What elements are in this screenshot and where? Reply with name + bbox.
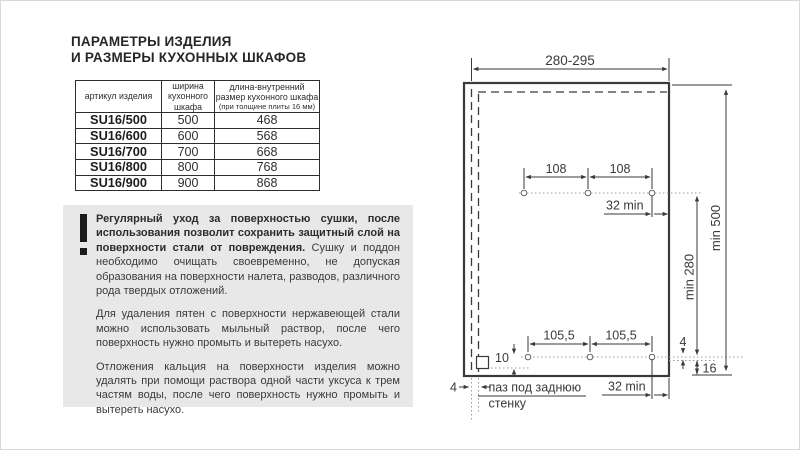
manual-page: ПАРАМЕТРЫ ИЗДЕЛИЯ И РАЗМЕРЫ КУХОННЫХ ШКА… (0, 0, 800, 450)
cabinet-technical-drawing: 280-295 108 108 32 min min 500 min 280 1… (431, 41, 761, 433)
table-row: SU16/800 800 768 (76, 159, 320, 175)
col-header-length: длина-внутренний размер кухонного шкафа … (215, 81, 320, 113)
cell-width: 900 (162, 175, 215, 191)
groove-label-line1: паз под заднюю (489, 381, 582, 395)
cell-width: 500 (162, 113, 215, 129)
table-header-row: артикул изделия ширина кухонного шкафа д… (76, 81, 320, 113)
table-row: SU16/600 600 568 (76, 128, 320, 144)
dim-label-4-right: 4 (680, 335, 687, 349)
table-row: SU16/500 500 468 (76, 113, 320, 129)
cell-length: 468 (215, 113, 320, 129)
exclamation-icon (80, 214, 87, 256)
care-notice-text: Регулярный уход за поверхностью сушки, п… (96, 212, 400, 426)
cell-width: 600 (162, 128, 215, 144)
cell-article: SU16/500 (76, 113, 162, 129)
page-title: ПАРАМЕТРЫ ИЗДЕЛИЯ И РАЗМЕРЫ КУХОННЫХ ШКА… (71, 34, 306, 66)
dim-label-10: 10 (495, 351, 509, 365)
dim-label-16: 16 (703, 362, 717, 376)
dim-label-min280: min 280 (682, 254, 697, 300)
page-title-line2: И РАЗМЕРЫ КУХОННЫХ ШКАФОВ (71, 50, 306, 66)
dim-label-32min-bottom: 32 min (608, 380, 646, 394)
dim-label-width: 280-295 (545, 53, 595, 68)
notice-paragraph-1: Регулярный уход за поверхностью сушки, п… (96, 212, 400, 298)
cell-length: 568 (215, 128, 320, 144)
table-row: SU16/900 900 868 (76, 175, 320, 191)
dim-label-32min-top: 32 min (606, 199, 644, 213)
dim-label-min500: min 500 (708, 205, 723, 251)
dim-label-4-left: 4 (450, 381, 457, 395)
page-title-line1: ПАРАМЕТРЫ ИЗДЕЛИЯ (71, 34, 306, 50)
dim-label-108-right: 108 (610, 162, 631, 176)
notice-paragraph-3: Отложения кальция на поверхности изделия… (96, 360, 400, 418)
cell-length: 868 (215, 175, 320, 191)
dim-label-1055-left: 105,5 (543, 329, 574, 343)
cell-article: SU16/600 (76, 128, 162, 144)
care-notice-box: Регулярный уход за поверхностью сушки, п… (63, 205, 413, 407)
cell-width: 800 (162, 159, 215, 175)
table-row: SU16/700 700 668 (76, 144, 320, 160)
dim-label-108-left: 108 (546, 162, 567, 176)
col-header-width: ширина кухонного шкафа (162, 81, 215, 113)
dim-label-1055-right: 105,5 (605, 329, 636, 343)
size-table: артикул изделия ширина кухонного шкафа д… (75, 80, 320, 191)
cell-article: SU16/900 (76, 175, 162, 191)
notice-paragraph-2: Для удаления пятен с поверхности нержаве… (96, 307, 400, 350)
groove-cross-section (477, 357, 489, 369)
cell-width: 700 (162, 144, 215, 160)
cell-length: 768 (215, 159, 320, 175)
cell-length: 668 (215, 144, 320, 160)
col-header-length-main: длина-внутренний размер кухонного шкафа (215, 82, 319, 103)
cell-article: SU16/700 (76, 144, 162, 160)
groove-label-line2: стенку (489, 397, 527, 411)
col-header-article: артикул изделия (76, 81, 162, 113)
col-header-length-sub: (при толщине плиты 16 мм) (215, 103, 319, 112)
cell-article: SU16/800 (76, 159, 162, 175)
